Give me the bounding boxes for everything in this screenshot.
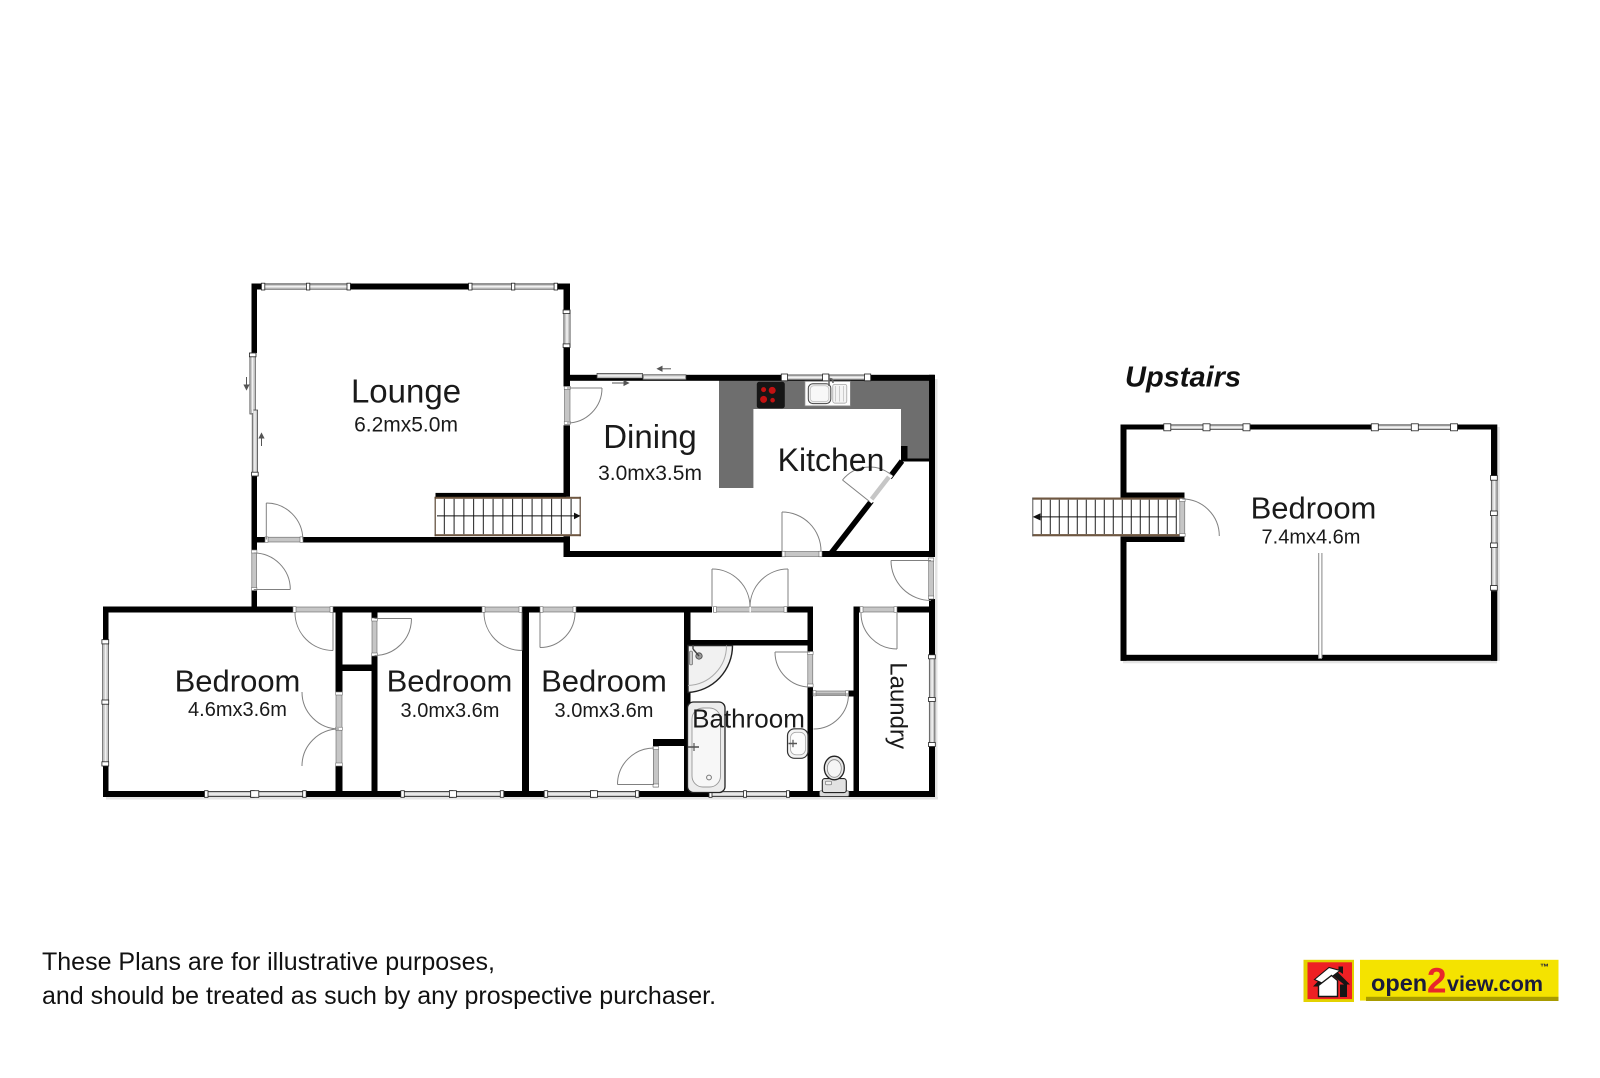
svg-text:3.0mx3.6m: 3.0mx3.6m bbox=[555, 700, 654, 722]
svg-text:and should be treated as such: and should be treated as such by any pro… bbox=[42, 982, 716, 1010]
svg-text:Bathroom: Bathroom bbox=[692, 704, 805, 734]
svg-text:3.0mx3.5m: 3.0mx3.5m bbox=[598, 462, 702, 485]
svg-text:2: 2 bbox=[1427, 962, 1446, 1001]
svg-text:Bedroom: Bedroom bbox=[541, 663, 667, 698]
svg-text:These Plans are for illustrati: These Plans are for illustrative purpose… bbox=[42, 948, 495, 976]
svg-text:6.2mx5.0m: 6.2mx5.0m bbox=[354, 414, 458, 437]
svg-text:open: open bbox=[1371, 970, 1427, 996]
svg-text:3.0mx3.6m: 3.0mx3.6m bbox=[401, 700, 500, 722]
svg-text:4.6mx3.6m: 4.6mx3.6m bbox=[188, 699, 287, 721]
svg-text:Bedroom: Bedroom bbox=[387, 663, 513, 698]
svg-text:Kitchen: Kitchen bbox=[778, 442, 885, 478]
svg-text:7.4mx4.6m: 7.4mx4.6m bbox=[1262, 527, 1361, 549]
svg-text:Lounge: Lounge bbox=[351, 373, 461, 410]
svg-text:Bedroom: Bedroom bbox=[1251, 491, 1377, 526]
svg-text:™: ™ bbox=[1540, 962, 1549, 972]
svg-text:Upstairs: Upstairs bbox=[1125, 362, 1241, 394]
svg-text:Bedroom: Bedroom bbox=[175, 663, 301, 698]
svg-text:Laundry: Laundry bbox=[885, 662, 912, 749]
svg-text:view.com: view.com bbox=[1447, 972, 1543, 996]
svg-text:Dining: Dining bbox=[603, 418, 697, 455]
